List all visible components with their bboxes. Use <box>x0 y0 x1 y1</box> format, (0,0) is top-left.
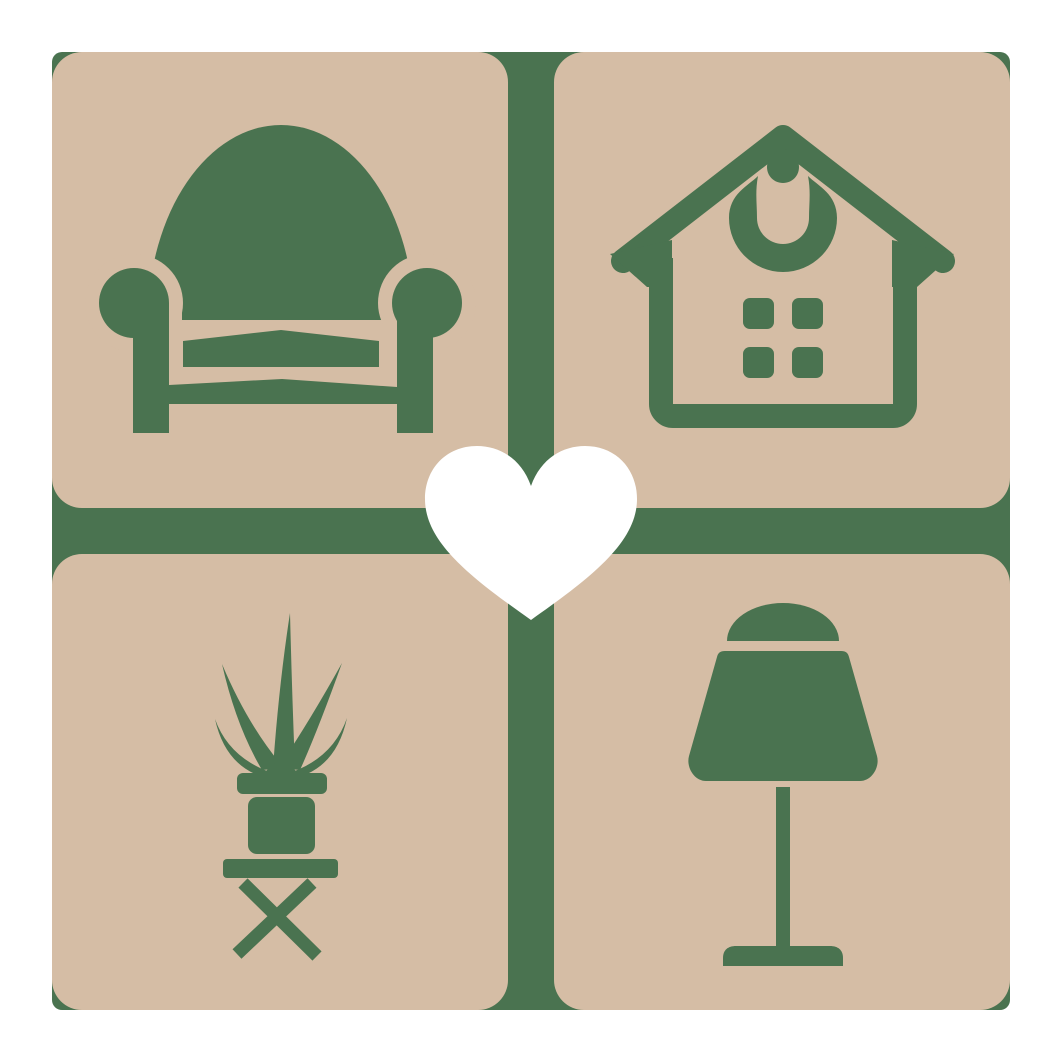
heart-shape <box>425 446 637 620</box>
house-ornament-ring <box>729 176 837 272</box>
heart-icon <box>423 444 639 622</box>
house-walls <box>661 258 905 416</box>
pot-body <box>248 797 315 854</box>
lamp-shade <box>688 651 877 781</box>
lamp-base <box>723 946 843 966</box>
lamp-finial <box>727 603 839 641</box>
armchair-right-leg <box>397 303 433 433</box>
stool-top <box>223 859 338 878</box>
tile-house <box>554 52 1010 508</box>
plant-stool <box>223 859 338 956</box>
house-windows <box>743 298 823 378</box>
tile-armchair <box>52 52 508 508</box>
armchair-icon <box>52 52 508 508</box>
house-icon <box>554 52 1010 508</box>
logo <box>0 0 1063 1063</box>
armchair-left-leg <box>133 303 169 433</box>
potted-plant-icon <box>52 554 508 1010</box>
armchair-cushion <box>183 330 379 367</box>
armchair-rail <box>169 379 397 404</box>
armchair-back <box>148 125 414 320</box>
stool-legs <box>237 883 317 956</box>
tile-table-lamp <box>554 554 1010 1010</box>
table-lamp-icon <box>554 554 1010 1010</box>
lamp-stem <box>776 787 790 949</box>
tile-potted-plant <box>52 554 508 1010</box>
logo-canvas <box>0 0 1063 1063</box>
pot-rim <box>237 773 327 794</box>
